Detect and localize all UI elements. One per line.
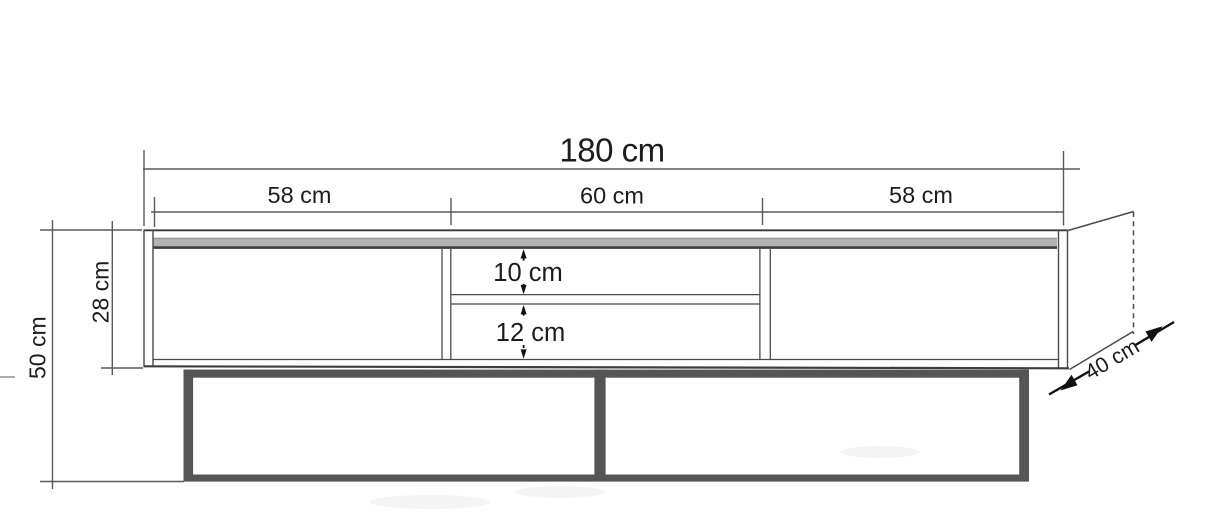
svg-text:10 cm: 10 cm — [493, 259, 562, 287]
svg-text:180 cm: 180 cm — [559, 132, 664, 169]
svg-text:58 cm: 58 cm — [889, 182, 953, 208]
svg-text:58 cm: 58 cm — [268, 182, 332, 208]
svg-text:60 cm: 60 cm — [580, 183, 644, 209]
svg-text:12 cm: 12 cm — [496, 319, 565, 347]
svg-text:28 cm: 28 cm — [88, 261, 114, 324]
svg-text:50 cm: 50 cm — [25, 316, 51, 379]
